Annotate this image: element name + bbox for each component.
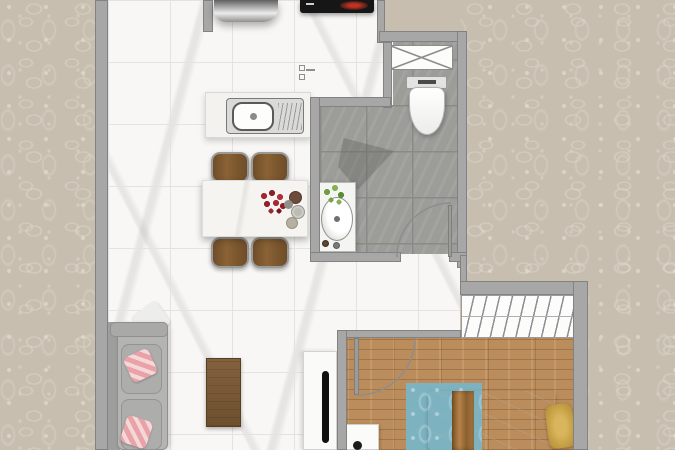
coffee-table [206,358,241,427]
wall-bath-left [310,97,320,262]
wall-tv [337,330,347,450]
sink-drainboard [278,103,302,130]
sink-drain [250,113,257,120]
plate [286,217,298,229]
valve-symbol [299,74,305,80]
tv-console [303,351,337,450]
lamp [353,441,362,450]
wood-chair [211,237,249,268]
soap-dish [322,240,329,247]
wardrobe-hanger-rack [461,295,574,338]
floor-plan-scene [0,0,675,450]
tv [322,371,329,443]
wall-bath-right [457,31,467,268]
plant [320,183,348,207]
wood-chair [251,152,289,183]
toilet-flush-button [418,80,436,84]
basin-drain [334,216,340,222]
bathroom-door-leaf [448,205,452,257]
bedroom-door-leaf [354,338,359,395]
wall-bath-jog [310,97,391,107]
wall-bedroom-right [573,281,588,450]
wall-kitchen-stub [203,0,213,32]
valve-tick [306,69,315,71]
double-bed [428,391,555,450]
cooktop-label [306,3,314,5]
bed-runner [452,391,474,450]
range-appliance [214,0,278,22]
valve-symbol [299,65,305,71]
wallpaper-notch [385,0,460,31]
wood-chair [211,152,249,183]
wall-bedroom-top [460,281,588,295]
faucet-knob [333,242,340,249]
wall-divider [337,330,461,338]
burner-glow [340,1,368,10]
wood-chair [251,237,289,268]
wall-bath-bottom [310,252,401,262]
duct-shaft [390,45,453,70]
gold-pillow [544,403,576,450]
wall-left [95,0,108,450]
sofa-armrest [110,322,168,337]
wall-bath-top [379,31,467,42]
